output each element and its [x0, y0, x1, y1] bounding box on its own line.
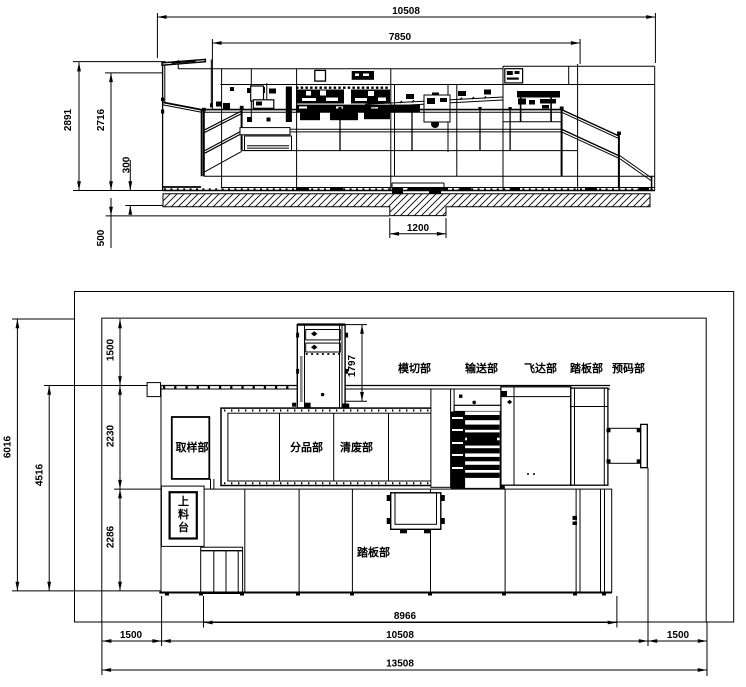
svg-text:取样部: 取样部	[176, 440, 209, 454]
svg-text:500: 500	[96, 229, 107, 246]
svg-text:2286: 2286	[106, 525, 117, 548]
svg-text:2891: 2891	[63, 108, 74, 131]
svg-text:4516: 4516	[35, 463, 46, 486]
svg-text:300: 300	[122, 156, 133, 173]
svg-text:8966: 8966	[394, 611, 417, 622]
svg-text:2716: 2716	[96, 108, 107, 131]
svg-text:2230: 2230	[106, 424, 117, 447]
svg-text:清废部: 清废部	[340, 440, 373, 454]
svg-text:输送部: 输送部	[465, 361, 498, 375]
svg-text:1500: 1500	[106, 338, 117, 361]
svg-text:1500: 1500	[120, 630, 143, 641]
svg-text:台: 台	[178, 520, 189, 534]
svg-text:1200: 1200	[407, 223, 430, 234]
svg-text:13508: 13508	[386, 659, 414, 670]
svg-text:模切部: 模切部	[398, 361, 431, 375]
svg-text:飞达部: 飞达部	[524, 361, 557, 375]
svg-text:预码部: 预码部	[612, 361, 645, 375]
svg-text:1797: 1797	[347, 354, 358, 377]
svg-text:踏板部: 踏板部	[357, 545, 390, 559]
svg-text:料: 料	[178, 507, 189, 521]
svg-text:上: 上	[178, 494, 189, 508]
svg-text:踏板部: 踏板部	[570, 361, 603, 375]
svg-text:分品部: 分品部	[290, 440, 323, 454]
svg-text:6016: 6016	[3, 435, 14, 458]
svg-text:7850: 7850	[389, 32, 412, 43]
svg-text:1500: 1500	[667, 630, 690, 641]
svg-text:10508: 10508	[386, 630, 414, 641]
svg-text:10508: 10508	[392, 6, 420, 17]
